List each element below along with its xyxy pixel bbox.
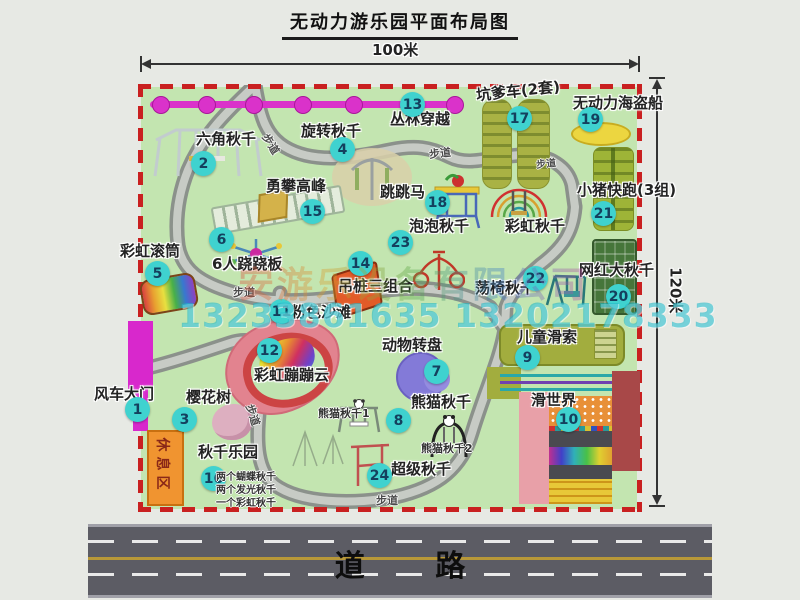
slide-world-dark-band — [549, 431, 612, 447]
label-slide-world: 滑世界 — [531, 392, 576, 409]
jungle-crossing-dot — [294, 96, 312, 114]
badge-21: 21 — [591, 201, 616, 226]
badge-1: 1 — [125, 397, 150, 422]
label-hexagon-swing: 六角秋千 — [196, 131, 256, 148]
label-panda-swing-1: 熊猫秋千1 — [318, 405, 370, 421]
badge-3: 3 — [172, 407, 197, 432]
badge-15: 15 — [300, 199, 325, 224]
windmill-gate-icon — [128, 321, 153, 389]
slide-world-wave-band — [549, 479, 612, 504]
rest-area-label: 休息区 — [153, 433, 173, 499]
watermark-phone: 13233861635 13202178333 — [178, 296, 718, 335]
label-swing-park: 秋千乐园 — [198, 444, 258, 461]
footpath-label: 步道 — [535, 154, 556, 171]
badge-18: 18 — [425, 190, 450, 215]
footpath-label: 步道 — [428, 144, 452, 162]
swing-park-note-3: 一个彩虹秋千 — [216, 494, 276, 509]
dimension-height-line — [656, 82, 658, 502]
slide-world-dark-band — [549, 465, 612, 479]
jungle-crossing-dot — [245, 96, 263, 114]
label-animal-turntable: 动物转盘 — [382, 337, 442, 354]
arrow-down-icon — [652, 495, 662, 505]
badge-5: 5 — [145, 261, 170, 286]
jungle-crossing-dot — [198, 96, 216, 114]
label-pig-run: 小猪快跑(3组) — [577, 182, 676, 199]
badge-4: 4 — [330, 137, 355, 162]
badge-12: 12 — [257, 338, 282, 363]
label-bubble-swing: 泡泡秋千 — [409, 218, 469, 235]
arrow-up-icon — [652, 79, 662, 89]
slide-world-line — [500, 381, 612, 384]
label-rainbow-roller: 彩虹滚筒 — [120, 243, 180, 260]
dimension-width-label: 100米 — [372, 42, 418, 59]
arrow-right-icon — [629, 59, 639, 69]
badge-19: 19 — [578, 107, 603, 132]
footpath-label: 步道 — [376, 492, 398, 508]
badge-24: 24 — [367, 463, 392, 488]
label-big-swing: 网红大秋千 — [579, 262, 654, 279]
badge-17: 17 — [507, 106, 532, 131]
park-layout-diagram: 无动力游乐园平面布局图 100米 120米 — [0, 0, 800, 600]
label-climbing-peak: 勇攀高峰 — [266, 178, 326, 195]
badge-8: 8 — [386, 408, 411, 433]
badge-9: 9 — [515, 345, 540, 370]
label-super-swing: 超级秋千 — [391, 461, 451, 478]
badge-10: 10 — [556, 407, 581, 432]
jungle-crossing-dot — [345, 96, 363, 114]
label-rainbow-swing: 彩虹秋千 — [505, 218, 565, 235]
road-label: 道 路 — [88, 541, 712, 585]
label-rotating-swing: 旋转秋千 — [301, 123, 361, 140]
badge-7: 7 — [424, 359, 449, 384]
slide-world-rainbow-band — [549, 447, 612, 465]
jungle-crossing-dot — [152, 96, 170, 114]
label-panda-swing-2: 熊猫秋千2 — [421, 440, 473, 456]
badge-23: 23 — [388, 230, 413, 255]
map-border-top — [138, 84, 642, 89]
label-cherry-tree: 樱花树 — [186, 389, 231, 406]
page-title: 无动力游乐园平面布局图 — [282, 8, 518, 40]
badge-13: 13 — [400, 92, 425, 117]
label-jumping-horse: 跳跳马 — [380, 184, 425, 201]
badge-6: 6 — [209, 227, 234, 252]
slide-world-red-bar — [612, 371, 640, 471]
road: 道 路 — [88, 524, 712, 598]
label-panda-swing: 熊猫秋千 — [411, 394, 471, 411]
dimension-tick — [649, 505, 665, 507]
swing-park-sketch — [285, 424, 347, 470]
dimension-width-line — [146, 63, 634, 65]
arrow-left-icon — [141, 59, 151, 69]
label-rainbow-cloud: 彩虹蹦蹦云 — [254, 367, 329, 384]
badge-2: 2 — [191, 151, 216, 176]
slide-world-line — [500, 374, 612, 377]
